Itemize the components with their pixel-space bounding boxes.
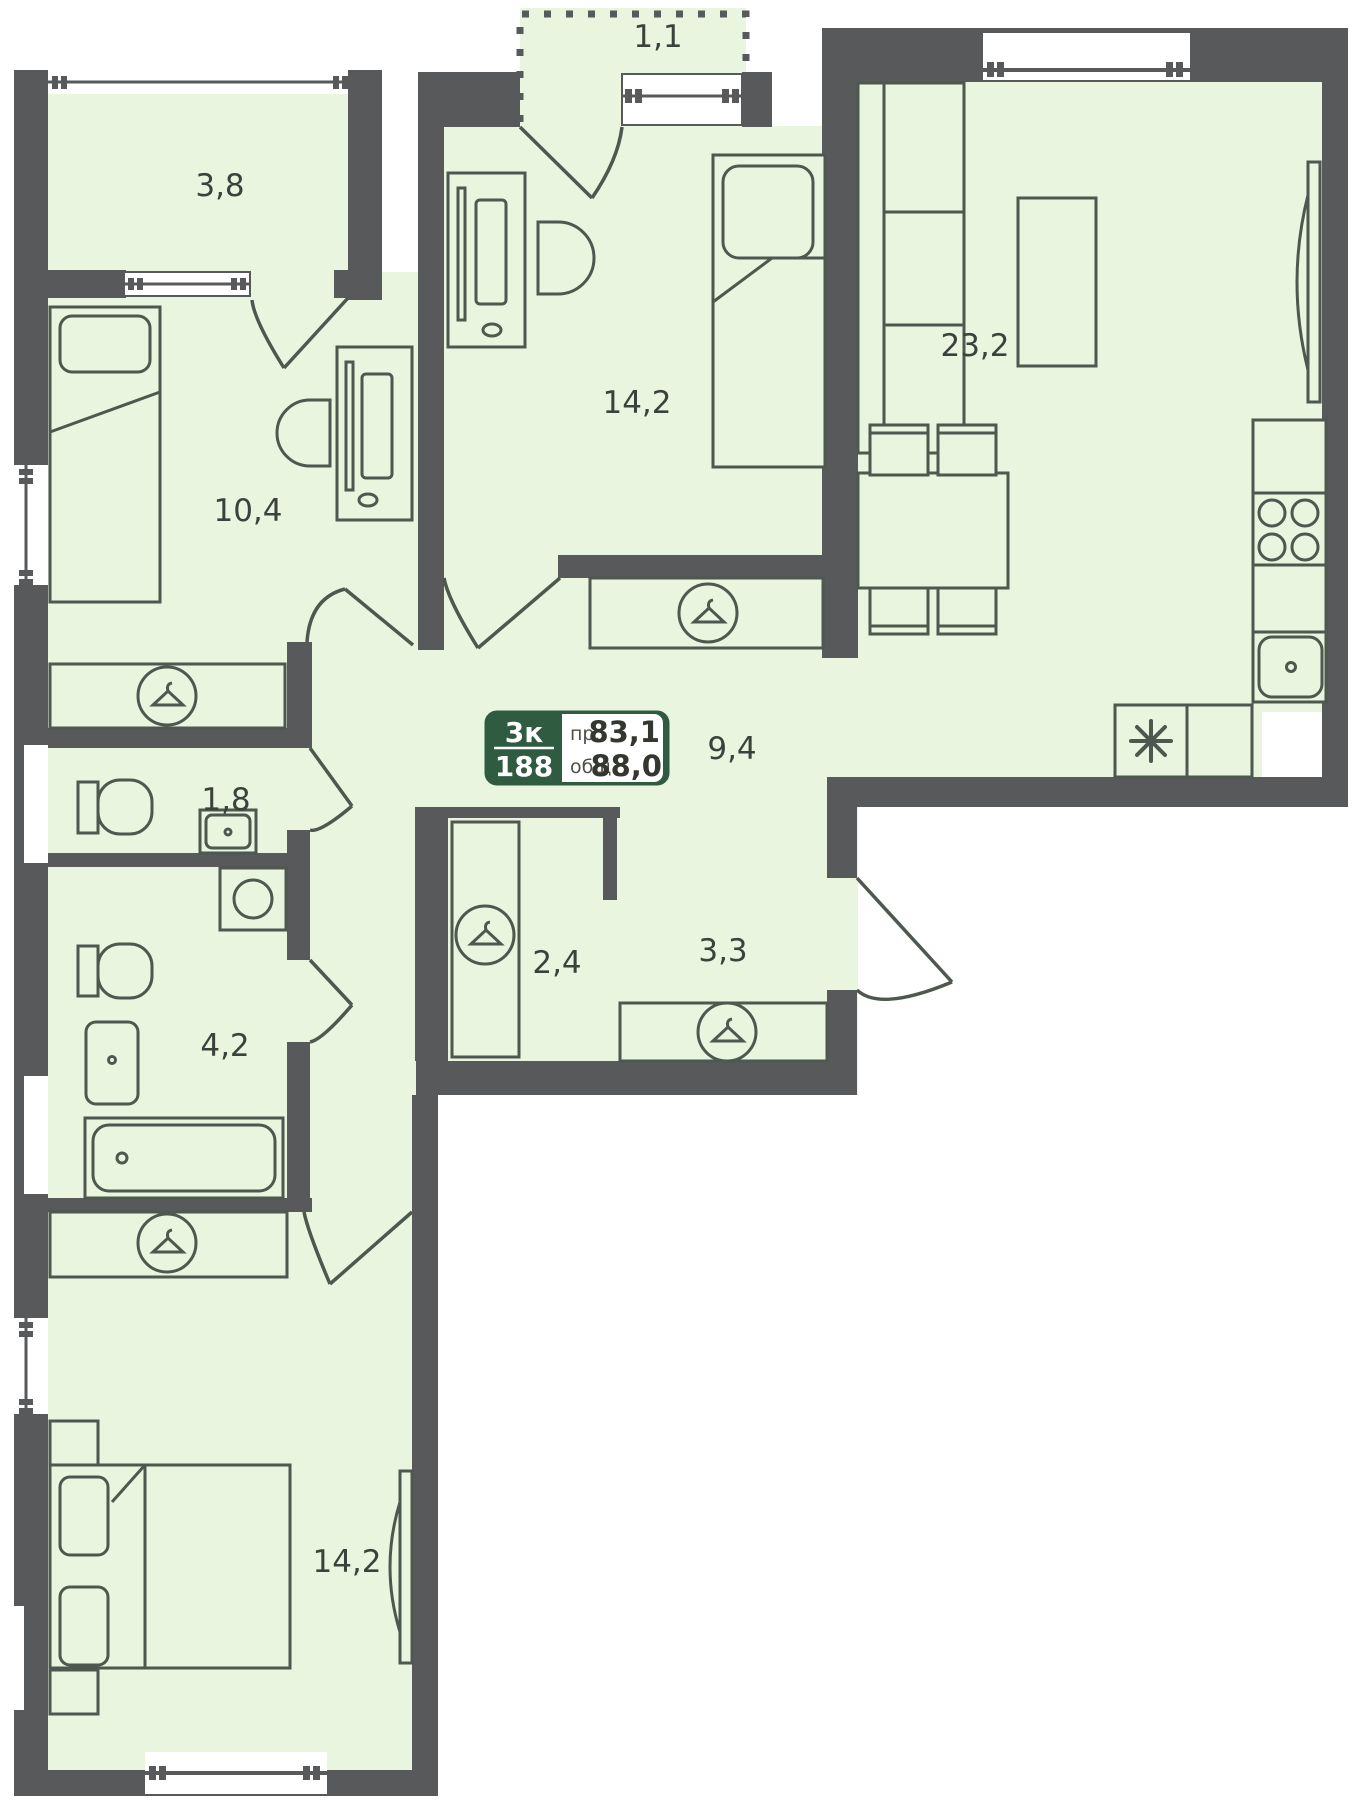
dining-chair: [938, 588, 996, 634]
dining-chair: [870, 588, 928, 634]
wardrobe-hall: [590, 578, 823, 648]
room-area-label: 2,4: [532, 945, 581, 981]
desk-with-computer: [448, 173, 525, 347]
nightstand: [50, 1670, 98, 1714]
window-icon: [4, 1318, 48, 1414]
sofa: [858, 83, 964, 453]
window-icon: [124, 272, 250, 296]
room-area-label: 23,2: [940, 328, 1009, 364]
asterisk-icon: [1131, 721, 1171, 761]
toilet: [78, 944, 152, 998]
bed-single-top: [713, 155, 825, 467]
window-icon: [622, 74, 742, 125]
wardrobe-closet-unit: [452, 822, 519, 1057]
bathtub: [85, 1118, 283, 1198]
desk-with-computer: [337, 347, 412, 520]
wall-shaft: [8, 1606, 24, 1710]
room-area-label: 1,8: [201, 782, 250, 818]
kitchen-sink: [1259, 637, 1322, 697]
exterior-notch-left: [382, 50, 418, 272]
floor-plan: 3,8 1,1 14,2 10,4 23,2 9,4 1,8 2,4 3,3 4…: [0, 0, 1355, 1802]
desk-chair: [277, 400, 330, 466]
washing-machine: [220, 868, 286, 930]
room-area-label: 3,3: [698, 933, 747, 969]
desk-chair: [538, 222, 594, 294]
window-icon: [145, 1752, 327, 1794]
dining-table: [858, 473, 1008, 588]
bed-single-left: [50, 307, 160, 602]
info-projected-value: 83,1: [588, 715, 660, 749]
coffee-table: [1018, 198, 1096, 366]
room-area-label: 9,4: [707, 731, 756, 767]
toilet: [78, 780, 152, 834]
room-area-label: 14,2: [312, 1544, 381, 1580]
wardrobe-bedroom: [50, 1212, 287, 1277]
exterior-notch-right: [772, 46, 822, 126]
wardrobe-room-left: [50, 664, 285, 728]
info-room-count: 3к: [505, 716, 544, 749]
bed-double: [50, 1465, 290, 1668]
fridge-niche: [1262, 712, 1322, 777]
window-icon: [983, 33, 1190, 80]
sink-vertical: [86, 1022, 138, 1104]
info-total-value: 88,0: [590, 749, 662, 783]
room-area-label: 4,2: [200, 1028, 249, 1064]
window-icon: [48, 70, 348, 94]
room-area-label: 3,8: [195, 168, 244, 204]
room-area-label: 14,2: [602, 385, 671, 421]
info-unit-number: 188: [495, 750, 553, 783]
dining-chair: [870, 425, 928, 475]
room-area-label: 1,1: [633, 19, 682, 55]
wall-shaft: [24, 745, 48, 863]
wall-shaft: [24, 1076, 48, 1194]
info-box: 3к 188 пр. 83,1 общ. 88,0: [486, 712, 668, 784]
window-icon: [4, 465, 48, 585]
room-area-label: 10,4: [213, 493, 282, 529]
nightstand: [50, 1421, 98, 1465]
dining-chair: [938, 425, 996, 475]
